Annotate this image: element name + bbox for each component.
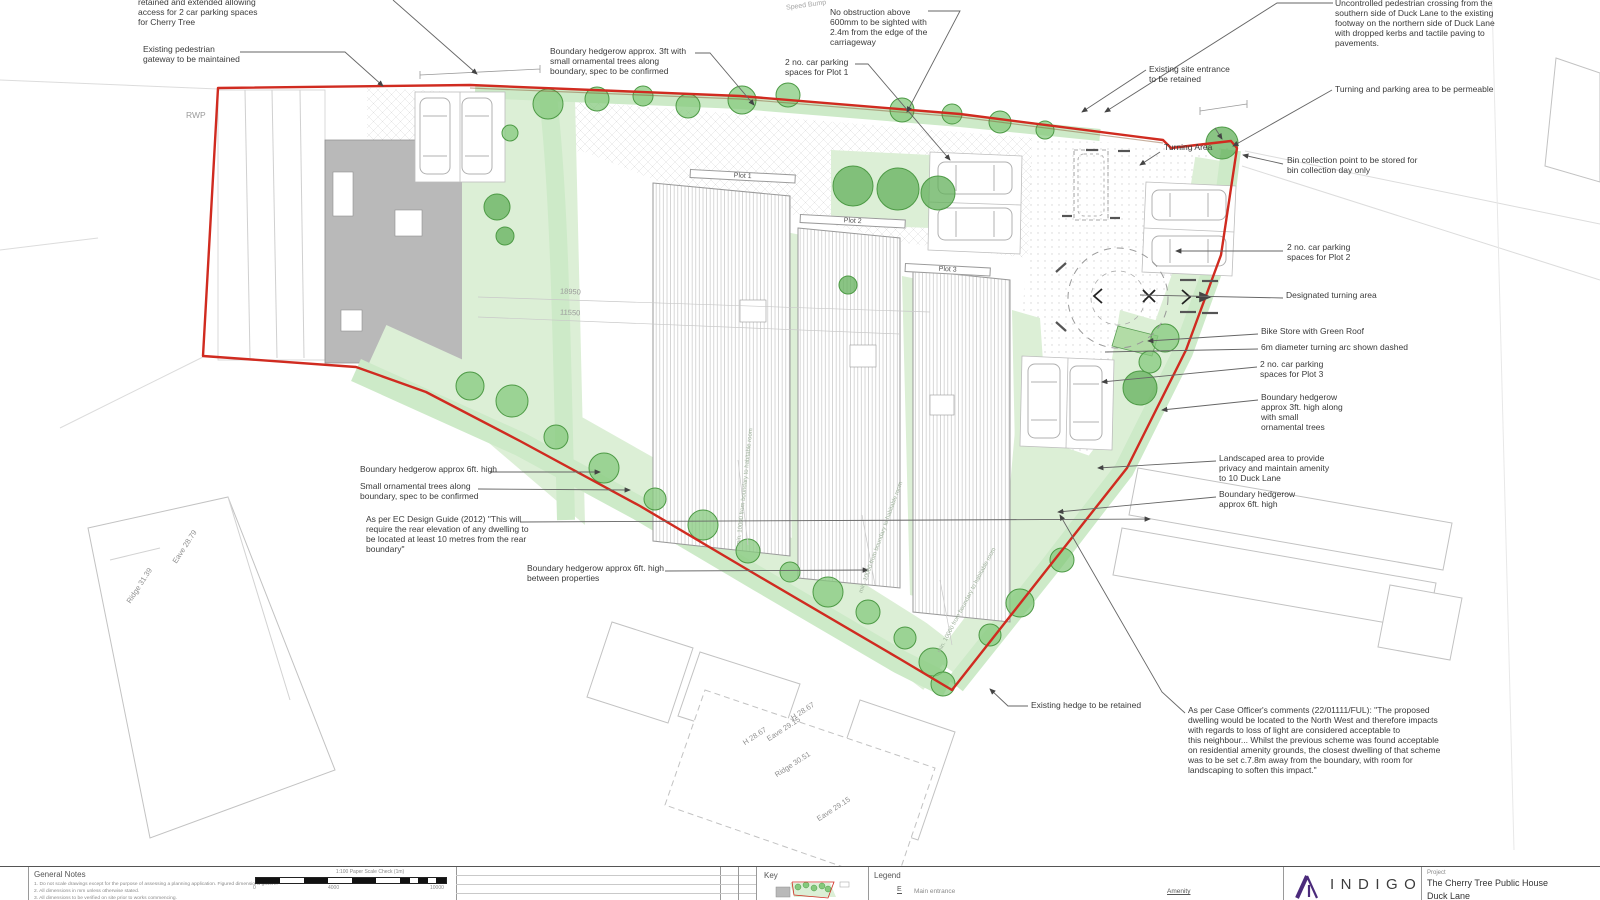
general-note-1: 1. Do not scale drawings except for the …	[34, 882, 278, 887]
label-rwp: RWP	[186, 110, 206, 120]
callout-hedgerow-3ft-right: Boundary hedgerow approx 3ft. high along…	[1261, 392, 1343, 432]
site-plan-sheet: retained and extended allowing access fo…	[0, 0, 1600, 900]
callout-landscaped-area: Landscaped area to provide privacy and m…	[1219, 453, 1329, 483]
label-dim-11550: 11550	[560, 307, 581, 317]
legend-amenity: Amenity	[1167, 888, 1190, 895]
scale-caption: 1:100 Paper Scale Check (1m)	[290, 869, 450, 875]
callout-pedestrian-crossing: Uncontrolled pedestrian crossing from th…	[1335, 0, 1495, 48]
title-block: General Notes 1. Do not scale drawings e…	[0, 866, 1600, 900]
project-address: Duck Lane	[1427, 891, 1470, 900]
project-name: The Cherry Tree Public House	[1427, 878, 1548, 888]
legend-title: Legend	[874, 871, 901, 880]
label-dim-18950: 18950	[560, 286, 581, 296]
indigo-logo-text: INDIGO	[1330, 876, 1422, 893]
project-label: Project	[1427, 870, 1446, 876]
callout-parking-plot1: 2 no. car parking spaces for Plot 1	[785, 57, 848, 77]
general-note-2: 2. All dimensions in mm unless otherwise…	[34, 889, 139, 894]
indigo-logo-icon	[1292, 873, 1322, 899]
plot-3-building	[913, 270, 1010, 622]
callout-small-trees-left: Small ornamental trees along boundary, s…	[360, 481, 478, 501]
callout-hedgerow-3ft-top: Boundary hedgerow approx. 3ft with small…	[550, 46, 686, 76]
callout-pedestrian-gateway: Existing pedestrian gateway to be mainta…	[143, 44, 240, 64]
callout-ec-design-guide: As per EC Design Guide (2012) "This will…	[366, 514, 529, 554]
scale-bar	[255, 877, 447, 884]
callout-site-entrance: Existing site entrance to be retained	[1149, 64, 1230, 84]
callout-hedgerow-between: Boundary hedgerow approx 6ft. high betwe…	[527, 563, 664, 583]
scale-label-0: 0	[253, 885, 256, 891]
general-notes-title: General Notes	[34, 870, 86, 879]
callout-permeable-area: Turning and parking area to be permeable	[1335, 84, 1493, 94]
callout-designated-turning: Designated turning area	[1286, 290, 1377, 300]
callout-existing-hedge: Existing hedge to be retained	[1031, 700, 1141, 710]
legend-main-entrance: Main entrance	[914, 888, 955, 895]
callout-cherry-parking: retained and extended allowing access fo…	[138, 0, 258, 27]
callout-parking-plot2: 2 no. car parking spaces for Plot 2	[1287, 242, 1350, 262]
callout-turning-arc: 6m diameter turning arc shown dashed	[1261, 342, 1408, 352]
callout-hedgerow-6ft-right: Boundary hedgerow approx 6ft. high	[1219, 489, 1295, 509]
legend-entrance-symbol: E	[897, 886, 902, 894]
general-note-3: 3. All dimensions to be verified on site…	[34, 896, 177, 900]
label-turning-area: Turning Area	[1164, 142, 1212, 152]
callout-case-officer: As per Case Officer's comments (22/01111…	[1188, 705, 1440, 775]
callout-bike-store: Bike Store with Green Roof	[1261, 326, 1364, 336]
callout-bin-collection: Bin collection point to be stored for bi…	[1287, 155, 1417, 175]
callout-hedgerow-6ft-left: Boundary hedgerow approx 6ft. high	[360, 464, 497, 474]
scale-label-mid: 4000	[328, 885, 339, 891]
callout-no-obstruction: No obstruction above 600mm to be sighted…	[830, 7, 927, 47]
scale-label-end: 10000	[430, 885, 444, 891]
key-thumbnail	[770, 879, 862, 900]
callout-parking-plot3: 2 no. car parking spaces for Plot 3	[1260, 359, 1323, 379]
plot-1-building	[653, 183, 790, 556]
